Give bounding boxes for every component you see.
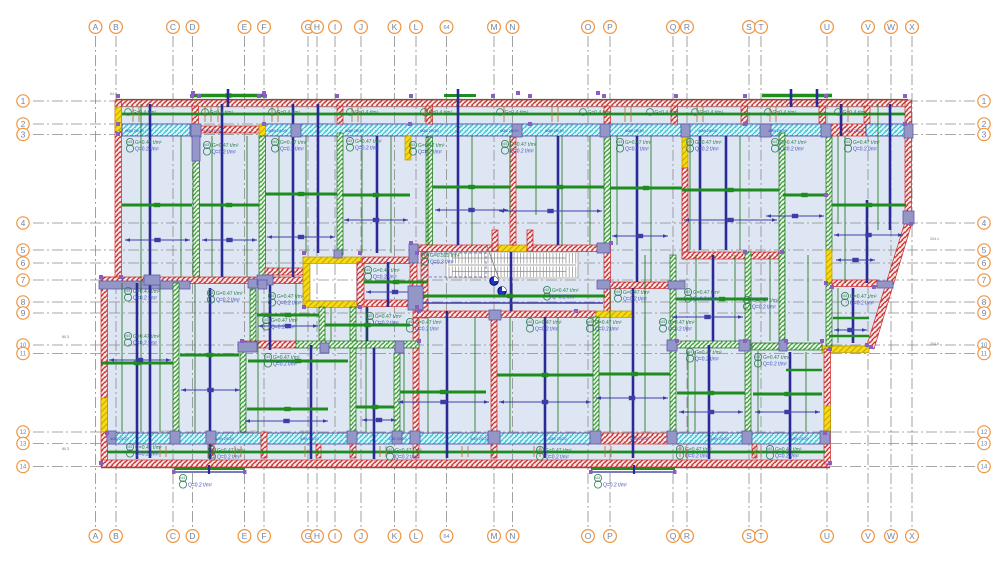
svg-text:G=0.47 t/m²: G=0.47 t/m² xyxy=(775,447,802,453)
svg-text:G=0.4 t/m²: G=0.4 t/m² xyxy=(133,110,157,116)
svg-text:E: E xyxy=(242,531,248,541)
svg-text:V: V xyxy=(865,531,871,541)
svg-text:P: P xyxy=(607,531,613,541)
svg-text:7: 7 xyxy=(982,275,987,285)
svg-text:H: H xyxy=(314,22,320,32)
svg-text:O: O xyxy=(585,22,592,32)
svg-text:1: 1 xyxy=(21,96,26,106)
svg-text:n15: n15 xyxy=(767,447,773,451)
svg-text:n15: n15 xyxy=(845,140,851,144)
svg-text:4Ø8 20/20: 4Ø8 20/20 xyxy=(768,128,787,133)
svg-text:G=0.4 t/m²: G=0.4 t/m² xyxy=(210,110,234,116)
svg-text:G=0.4 t/m²: G=0.4 t/m² xyxy=(277,110,301,116)
svg-text:3: 3 xyxy=(982,129,987,139)
svg-text:2: 2 xyxy=(21,119,26,129)
svg-text:G=0.47 t/m²: G=0.47 t/m² xyxy=(135,140,162,146)
svg-text:G=0.47 t/m²: G=0.47 t/m² xyxy=(763,355,790,361)
svg-text:Q: Q xyxy=(670,22,677,32)
svg-text:n15: n15 xyxy=(209,448,215,452)
svg-text:Q=0.2 t/m²: Q=0.2 t/m² xyxy=(685,454,709,460)
svg-text:C: C xyxy=(170,531,176,541)
svg-text:4Ø8 20/20: 4Ø8 20/20 xyxy=(625,128,644,133)
svg-text:G=0.47 t/m²: G=0.47 t/m² xyxy=(133,334,160,340)
svg-text:4Ø8 20/20: 4Ø8 20/20 xyxy=(470,436,489,441)
svg-text:G=0.47 t/m²: G=0.47 t/m² xyxy=(535,320,562,326)
svg-text:12: 12 xyxy=(981,430,988,436)
svg-text:G=0.4 t/m²: G=0.4 t/m² xyxy=(655,110,679,116)
svg-text:13: 13 xyxy=(981,442,988,448)
svg-text:n15: n15 xyxy=(347,139,353,143)
svg-text:Q=0.2 t/m²: Q=0.2 t/m² xyxy=(695,357,719,363)
svg-text:n15: n15 xyxy=(744,298,750,302)
svg-text:193.9: 193.9 xyxy=(160,430,169,434)
svg-text:4Ø8 20/20: 4Ø8 20/20 xyxy=(300,436,319,441)
svg-text:Q=0.2 t/m²: Q=0.2 t/m² xyxy=(375,321,399,327)
svg-text:Q=0.2 t/m²: Q=0.2 t/m² xyxy=(273,362,297,368)
svg-text:P: P xyxy=(607,22,613,32)
svg-text:n15: n15 xyxy=(387,448,393,452)
svg-text:F: F xyxy=(261,22,266,32)
svg-text:G=0.595 t/m²: G=0.595 t/m² xyxy=(430,253,460,259)
svg-text:5: 5 xyxy=(982,245,987,255)
svg-text:G=0.47 t/m²: G=0.47 t/m² xyxy=(668,320,695,326)
svg-text:G=0.4 t/m²: G=0.4 t/m² xyxy=(700,110,724,116)
svg-text:G=0.47 t/m²: G=0.47 t/m² xyxy=(133,289,160,295)
svg-text:G=0.47 t/m²: G=0.47 t/m² xyxy=(685,447,712,453)
svg-text:G=0.47 t/m²: G=0.47 t/m² xyxy=(271,318,298,324)
svg-text:H: H xyxy=(314,531,320,541)
svg-text:Q=0.2 t/m²: Q=0.2 t/m² xyxy=(271,325,295,331)
svg-text:n15: n15 xyxy=(265,355,271,359)
svg-text:V: V xyxy=(865,22,871,32)
svg-text:8: 8 xyxy=(982,297,987,307)
svg-text:G=0.47 t/m²: G=0.47 t/m² xyxy=(595,320,622,326)
svg-text:Q=0.2 t/m²: Q=0.2 t/m² xyxy=(133,296,157,302)
svg-text:M: M xyxy=(490,531,497,541)
svg-text:14: 14 xyxy=(981,465,988,471)
svg-text:80.3: 80.3 xyxy=(62,335,69,339)
svg-text:G=0.47 t/m²: G=0.47 t/m² xyxy=(552,288,579,294)
svg-text:Q=0.2 t/m²: Q=0.2 t/m² xyxy=(603,483,627,489)
svg-text:8: 8 xyxy=(21,297,26,307)
svg-text:G=0.47 t/m²: G=0.47 t/m² xyxy=(373,268,400,274)
svg-text:4Ø8 20/20: 4Ø8 20/20 xyxy=(845,128,864,133)
svg-text:n15: n15 xyxy=(180,476,186,480)
svg-text:G=0.47 t/m²: G=0.47 t/m² xyxy=(217,448,244,454)
svg-text:Q=0.2 t/m²: Q=0.2 t/m² xyxy=(623,297,647,303)
svg-text:Q=0.2 t/m²: Q=0.2 t/m² xyxy=(415,327,439,333)
svg-text:n15: n15 xyxy=(677,447,683,451)
svg-text:Q=0.3 t/m²: Q=0.3 t/m² xyxy=(430,260,454,266)
svg-text:I: I xyxy=(334,22,336,32)
svg-text:K: K xyxy=(392,531,398,541)
svg-text:E: E xyxy=(242,22,248,32)
svg-text:Q=0.2 t/m²: Q=0.2 t/m² xyxy=(668,327,692,333)
svg-text:4Ø8 20/20: 4Ø8 20/20 xyxy=(268,128,287,133)
svg-text:n15: n15 xyxy=(537,448,543,452)
svg-text:G=0.47 t/m²: G=0.47 t/m² xyxy=(752,298,779,304)
svg-text:n15: n15 xyxy=(127,140,133,144)
svg-text:G=0.4 t/m²: G=0.4 t/m² xyxy=(588,110,612,116)
svg-text:K: K xyxy=(392,22,398,32)
svg-text:4: 4 xyxy=(21,218,26,228)
svg-text:n15: n15 xyxy=(544,288,550,292)
svg-text:4Ø8 20/20: 4Ø8 20/20 xyxy=(545,128,564,133)
svg-text:n15: n15 xyxy=(527,320,533,324)
svg-text:Q=0.2 t/m²: Q=0.2 t/m² xyxy=(775,454,799,460)
svg-text:4Ø8 20/20: 4Ø8 20/20 xyxy=(500,128,519,133)
svg-text:F: F xyxy=(261,531,266,541)
svg-text:A: A xyxy=(93,22,99,32)
svg-text:3: 3 xyxy=(21,129,26,139)
svg-text:G=0.47 t/m²: G=0.47 t/m² xyxy=(395,448,422,454)
svg-text:N: N xyxy=(509,22,515,32)
svg-text:G=0.47 t/m²: G=0.47 t/m² xyxy=(135,445,162,451)
svg-text:4Ø8 20/20: 4Ø8 20/20 xyxy=(790,436,809,441)
svg-text:4Ø8 20/20: 4Ø8 20/20 xyxy=(388,436,407,441)
svg-text:11: 11 xyxy=(20,352,27,358)
svg-text:I: I xyxy=(334,531,336,541)
svg-text:64: 64 xyxy=(443,25,449,31)
svg-text:Q=0.2 t/m²: Q=0.2 t/m² xyxy=(395,455,419,461)
svg-text:13: 13 xyxy=(20,442,27,448)
svg-text:n15: n15 xyxy=(263,318,269,322)
svg-text:4Ø8 20/20: 4Ø8 20/20 xyxy=(215,436,234,441)
svg-text:n15: n15 xyxy=(125,334,131,338)
svg-text:G=0.4 t/m²: G=0.4 t/m² xyxy=(505,110,529,116)
svg-text:Q=0.2 t/m²: Q=0.2 t/m² xyxy=(355,146,379,152)
svg-text:G=0.47 t/m²: G=0.47 t/m² xyxy=(418,143,445,149)
svg-text:Q=0.2 t/m²: Q=0.2 t/m² xyxy=(135,147,159,153)
svg-text:Q=0.2 t/m²: Q=0.2 t/m² xyxy=(693,297,717,303)
svg-text:n15: n15 xyxy=(367,314,373,318)
svg-text:S: S xyxy=(746,22,752,32)
svg-text:80.3: 80.3 xyxy=(62,447,69,451)
svg-text:G=0.47 t/m²: G=0.47 t/m² xyxy=(850,294,877,300)
svg-text:9: 9 xyxy=(982,308,987,318)
svg-text:X: X xyxy=(909,531,915,541)
svg-text:6: 6 xyxy=(21,258,26,268)
svg-text:1: 1 xyxy=(982,96,987,106)
svg-text:G=0.4 t/m²: G=0.4 t/m² xyxy=(355,110,379,116)
svg-text:A: A xyxy=(93,531,99,541)
svg-text:2: 2 xyxy=(982,119,987,129)
svg-text:Q=0.2 t/m²: Q=0.2 t/m² xyxy=(212,150,236,156)
svg-text:Q=0.2 t/m²: Q=0.2 t/m² xyxy=(135,452,159,458)
svg-text:J: J xyxy=(359,531,363,541)
svg-text:204.6: 204.6 xyxy=(930,342,939,346)
svg-text:Q=0.2 t/m²: Q=0.2 t/m² xyxy=(752,305,776,311)
svg-text:S: S xyxy=(746,531,752,541)
svg-text:G=0.47 t/m²: G=0.47 t/m² xyxy=(375,314,402,320)
svg-text:G=0.47 t/m²: G=0.47 t/m² xyxy=(355,139,382,145)
svg-text:R: R xyxy=(684,22,690,32)
svg-text:Q=0.2 t/m²: Q=0.2 t/m² xyxy=(763,362,787,368)
svg-text:T: T xyxy=(758,531,763,541)
svg-text:n15: n15 xyxy=(755,355,761,359)
svg-text:5: 5 xyxy=(21,245,26,255)
svg-text:4Ø8 20/20: 4Ø8 20/20 xyxy=(203,128,222,133)
svg-text:n15: n15 xyxy=(587,320,593,324)
svg-text:n15: n15 xyxy=(365,268,371,272)
svg-text:T: T xyxy=(758,22,763,32)
svg-text:14: 14 xyxy=(20,465,27,471)
svg-text:Q=0.2 t/m²: Q=0.2 t/m² xyxy=(217,455,241,461)
svg-text:G=0.47 t/m²: G=0.47 t/m² xyxy=(216,291,243,297)
svg-text:4Ø8 20/20: 4Ø8 20/20 xyxy=(548,436,567,441)
svg-text:D: D xyxy=(189,22,195,32)
svg-text:n15: n15 xyxy=(687,140,693,144)
svg-text:L: L xyxy=(414,531,419,541)
svg-text:J: J xyxy=(359,22,363,32)
svg-text:Q=0.2 t/m²: Q=0.2 t/m² xyxy=(510,149,534,155)
svg-text:n15: n15 xyxy=(125,289,131,293)
svg-text:Q=0.2 t/m²: Q=0.2 t/m² xyxy=(695,147,719,153)
svg-text:G=0.47 t/m²: G=0.47 t/m² xyxy=(280,140,307,146)
svg-text:G=0.47 t/m²: G=0.47 t/m² xyxy=(273,355,300,361)
svg-text:U: U xyxy=(824,22,830,32)
svg-text:Q=0.2 t/m²: Q=0.2 t/m² xyxy=(552,295,576,301)
svg-text:L: L xyxy=(414,22,419,32)
svg-text:Q=0.2 t/m²: Q=0.2 t/m² xyxy=(133,341,157,347)
svg-text:n15: n15 xyxy=(272,140,278,144)
svg-text:4Ø8 20/20: 4Ø8 20/20 xyxy=(345,128,364,133)
svg-text:U: U xyxy=(824,531,830,541)
svg-text:204.1: 204.1 xyxy=(930,237,939,241)
svg-text:4: 4 xyxy=(982,218,987,228)
svg-text:160.6: 160.6 xyxy=(250,430,259,434)
svg-text:G=0.47 t/m²: G=0.47 t/m² xyxy=(780,140,807,146)
svg-text:Q=0.2 t/m²: Q=0.2 t/m² xyxy=(780,147,804,153)
svg-text:Q=0.2 t/m²: Q=0.2 t/m² xyxy=(853,147,877,153)
svg-text:G=0.47 t/m²: G=0.47 t/m² xyxy=(853,140,880,146)
svg-text:G=0.47 t/m²: G=0.47 t/m² xyxy=(545,448,572,454)
svg-text:G=0.47 t/m²: G=0.47 t/m² xyxy=(212,143,239,149)
svg-text:G=0.47 t/m²: G=0.47 t/m² xyxy=(623,290,650,296)
svg-text:G=0.4 t/m²: G=0.4 t/m² xyxy=(843,110,867,116)
svg-text:n15: n15 xyxy=(595,476,601,480)
svg-text:Q=0.2 t/m²: Q=0.2 t/m² xyxy=(280,147,304,153)
svg-text:Q=0.2 t/m²: Q=0.2 t/m² xyxy=(625,147,649,153)
svg-text:Q=0.2 t/m²: Q=0.2 t/m² xyxy=(373,275,397,281)
svg-text:X: X xyxy=(909,22,915,32)
svg-text:W: W xyxy=(887,531,895,541)
svg-text:n15: n15 xyxy=(687,350,693,354)
svg-text:n15: n15 xyxy=(617,140,623,144)
svg-text:R: R xyxy=(684,531,690,541)
svg-text:n15: n15 xyxy=(208,291,214,295)
svg-text:B: B xyxy=(113,531,119,541)
svg-text:G=0.47 t/m²: G=0.47 t/m² xyxy=(625,140,652,146)
svg-text:n15: n15 xyxy=(685,290,691,294)
svg-text:n15: n15 xyxy=(660,320,666,324)
svg-text:4Ø8 20/20: 4Ø8 20/20 xyxy=(125,128,144,133)
svg-text:Q: Q xyxy=(670,531,677,541)
svg-text:4Ø8 20/20: 4Ø8 20/20 xyxy=(110,436,129,441)
svg-text:M: M xyxy=(490,22,497,32)
svg-text:12: 12 xyxy=(20,430,27,436)
svg-text:4Ø8 20/20: 4Ø8 20/20 xyxy=(420,128,439,133)
svg-text:9: 9 xyxy=(21,308,26,318)
svg-text:Q=0.2 t/m²: Q=0.2 t/m² xyxy=(535,327,559,333)
svg-text:W: W xyxy=(887,22,895,32)
svg-text:n15: n15 xyxy=(204,143,210,147)
svg-text:O: O xyxy=(585,531,592,541)
svg-text:7: 7 xyxy=(21,275,26,285)
svg-text:4Ø8 20/20: 4Ø8 20/20 xyxy=(698,128,717,133)
svg-text:G=0.47 t/m²: G=0.47 t/m² xyxy=(277,294,304,300)
svg-text:n15: n15 xyxy=(615,290,621,294)
svg-text:64: 64 xyxy=(443,534,449,540)
svg-text:Q=0.2 t/m²: Q=0.2 t/m² xyxy=(216,298,240,304)
svg-text:G=0.47 t/m²: G=0.47 t/m² xyxy=(693,290,720,296)
svg-text:Q=0.2 t/m²: Q=0.2 t/m² xyxy=(277,301,301,307)
svg-text:D: D xyxy=(189,531,195,541)
svg-text:N: N xyxy=(509,531,515,541)
svg-text:C: C xyxy=(170,22,176,32)
svg-text:n15: n15 xyxy=(269,294,275,298)
svg-text:n15: n15 xyxy=(410,143,416,147)
svg-text:G=0.47 t/m²: G=0.47 t/m² xyxy=(695,350,722,356)
svg-text:n15: n15 xyxy=(502,142,508,146)
svg-text:64.3: 64.3 xyxy=(110,92,117,96)
svg-text:Q=0.2 t/m²: Q=0.2 t/m² xyxy=(850,301,874,307)
svg-text:n15: n15 xyxy=(127,445,133,449)
svg-text:6: 6 xyxy=(982,258,987,268)
svg-text:G=0.47 t/m²: G=0.47 t/m² xyxy=(510,142,537,148)
svg-text:n15: n15 xyxy=(842,294,848,298)
svg-text:Q=0.2 t/m²: Q=0.2 t/m² xyxy=(418,150,442,156)
svg-text:G=0.4 t/m²: G=0.4 t/m² xyxy=(773,110,797,116)
svg-text:G=0.47 t/m²: G=0.47 t/m² xyxy=(415,320,442,326)
svg-text:Q=0.2 t/m²: Q=0.2 t/m² xyxy=(188,483,212,489)
svg-text:n15: n15 xyxy=(407,320,413,324)
svg-text:Q=0.2 t/m²: Q=0.2 t/m² xyxy=(595,327,619,333)
svg-text:80.6: 80.6 xyxy=(300,430,307,434)
svg-text:4Ø8 20/20: 4Ø8 20/20 xyxy=(630,436,649,441)
svg-text:Q=0.2 t/m²: Q=0.2 t/m² xyxy=(545,455,569,461)
svg-text:B: B xyxy=(113,22,119,32)
svg-text:11: 11 xyxy=(981,352,988,358)
svg-text:G=0.47 t/m²: G=0.47 t/m² xyxy=(695,140,722,146)
svg-text:n15: n15 xyxy=(422,253,428,257)
svg-text:4Ø8 20/20: 4Ø8 20/20 xyxy=(710,436,729,441)
svg-text:n15: n15 xyxy=(772,140,778,144)
svg-text:G=0.4 t/m²: G=0.4 t/m² xyxy=(429,110,453,116)
